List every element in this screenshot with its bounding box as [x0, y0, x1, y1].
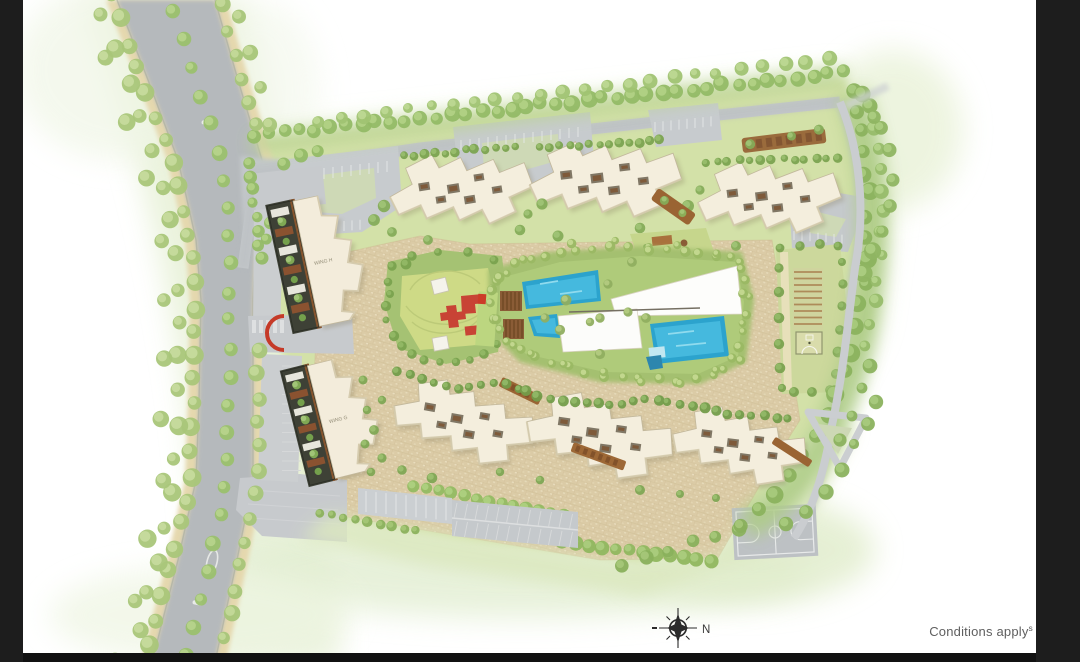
- svg-text:Conditions applys: Conditions applys: [929, 623, 1033, 639]
- svg-text:N: N: [702, 624, 710, 636]
